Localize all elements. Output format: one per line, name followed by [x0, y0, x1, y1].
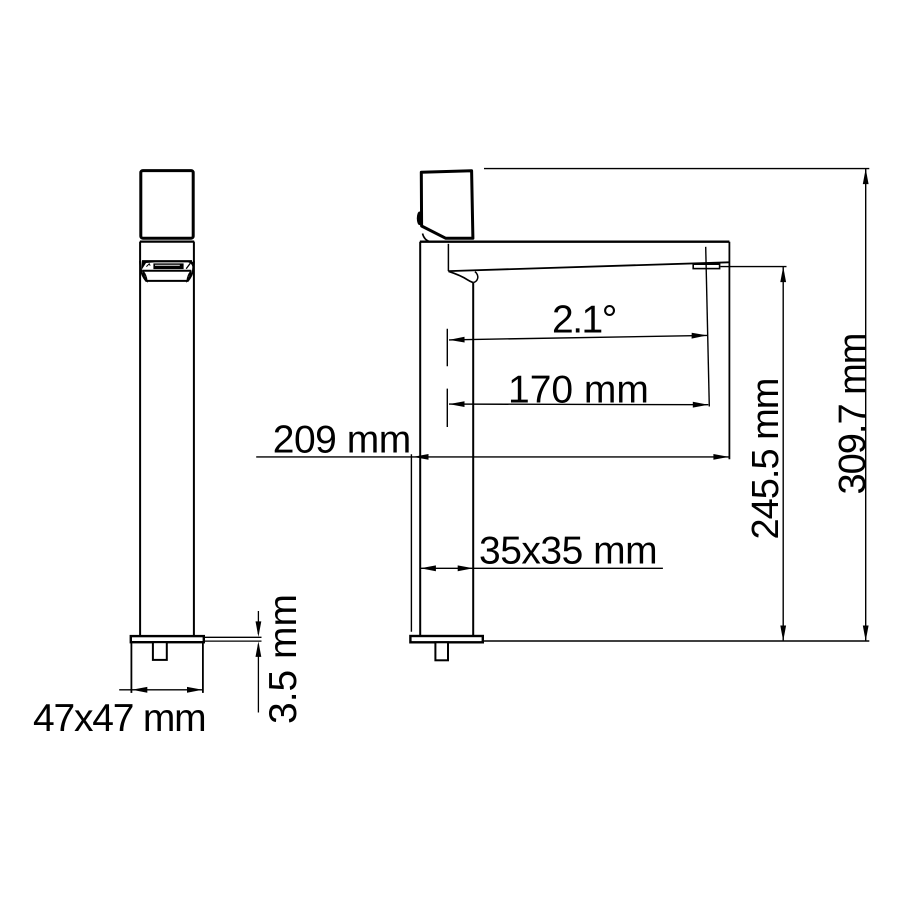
svg-text:170 mm: 170 mm — [508, 369, 649, 412]
svg-text:2.1°: 2.1° — [552, 299, 616, 342]
svg-text:3.5 mm: 3.5 mm — [262, 594, 305, 724]
svg-text:47x47 mm: 47x47 mm — [33, 697, 205, 740]
svg-text:35x35 mm: 35x35 mm — [479, 530, 657, 573]
svg-text:309.7 mm: 309.7 mm — [832, 334, 874, 495]
svg-text:245.5 mm: 245.5 mm — [745, 379, 787, 540]
svg-text:209 mm: 209 mm — [273, 418, 411, 461]
